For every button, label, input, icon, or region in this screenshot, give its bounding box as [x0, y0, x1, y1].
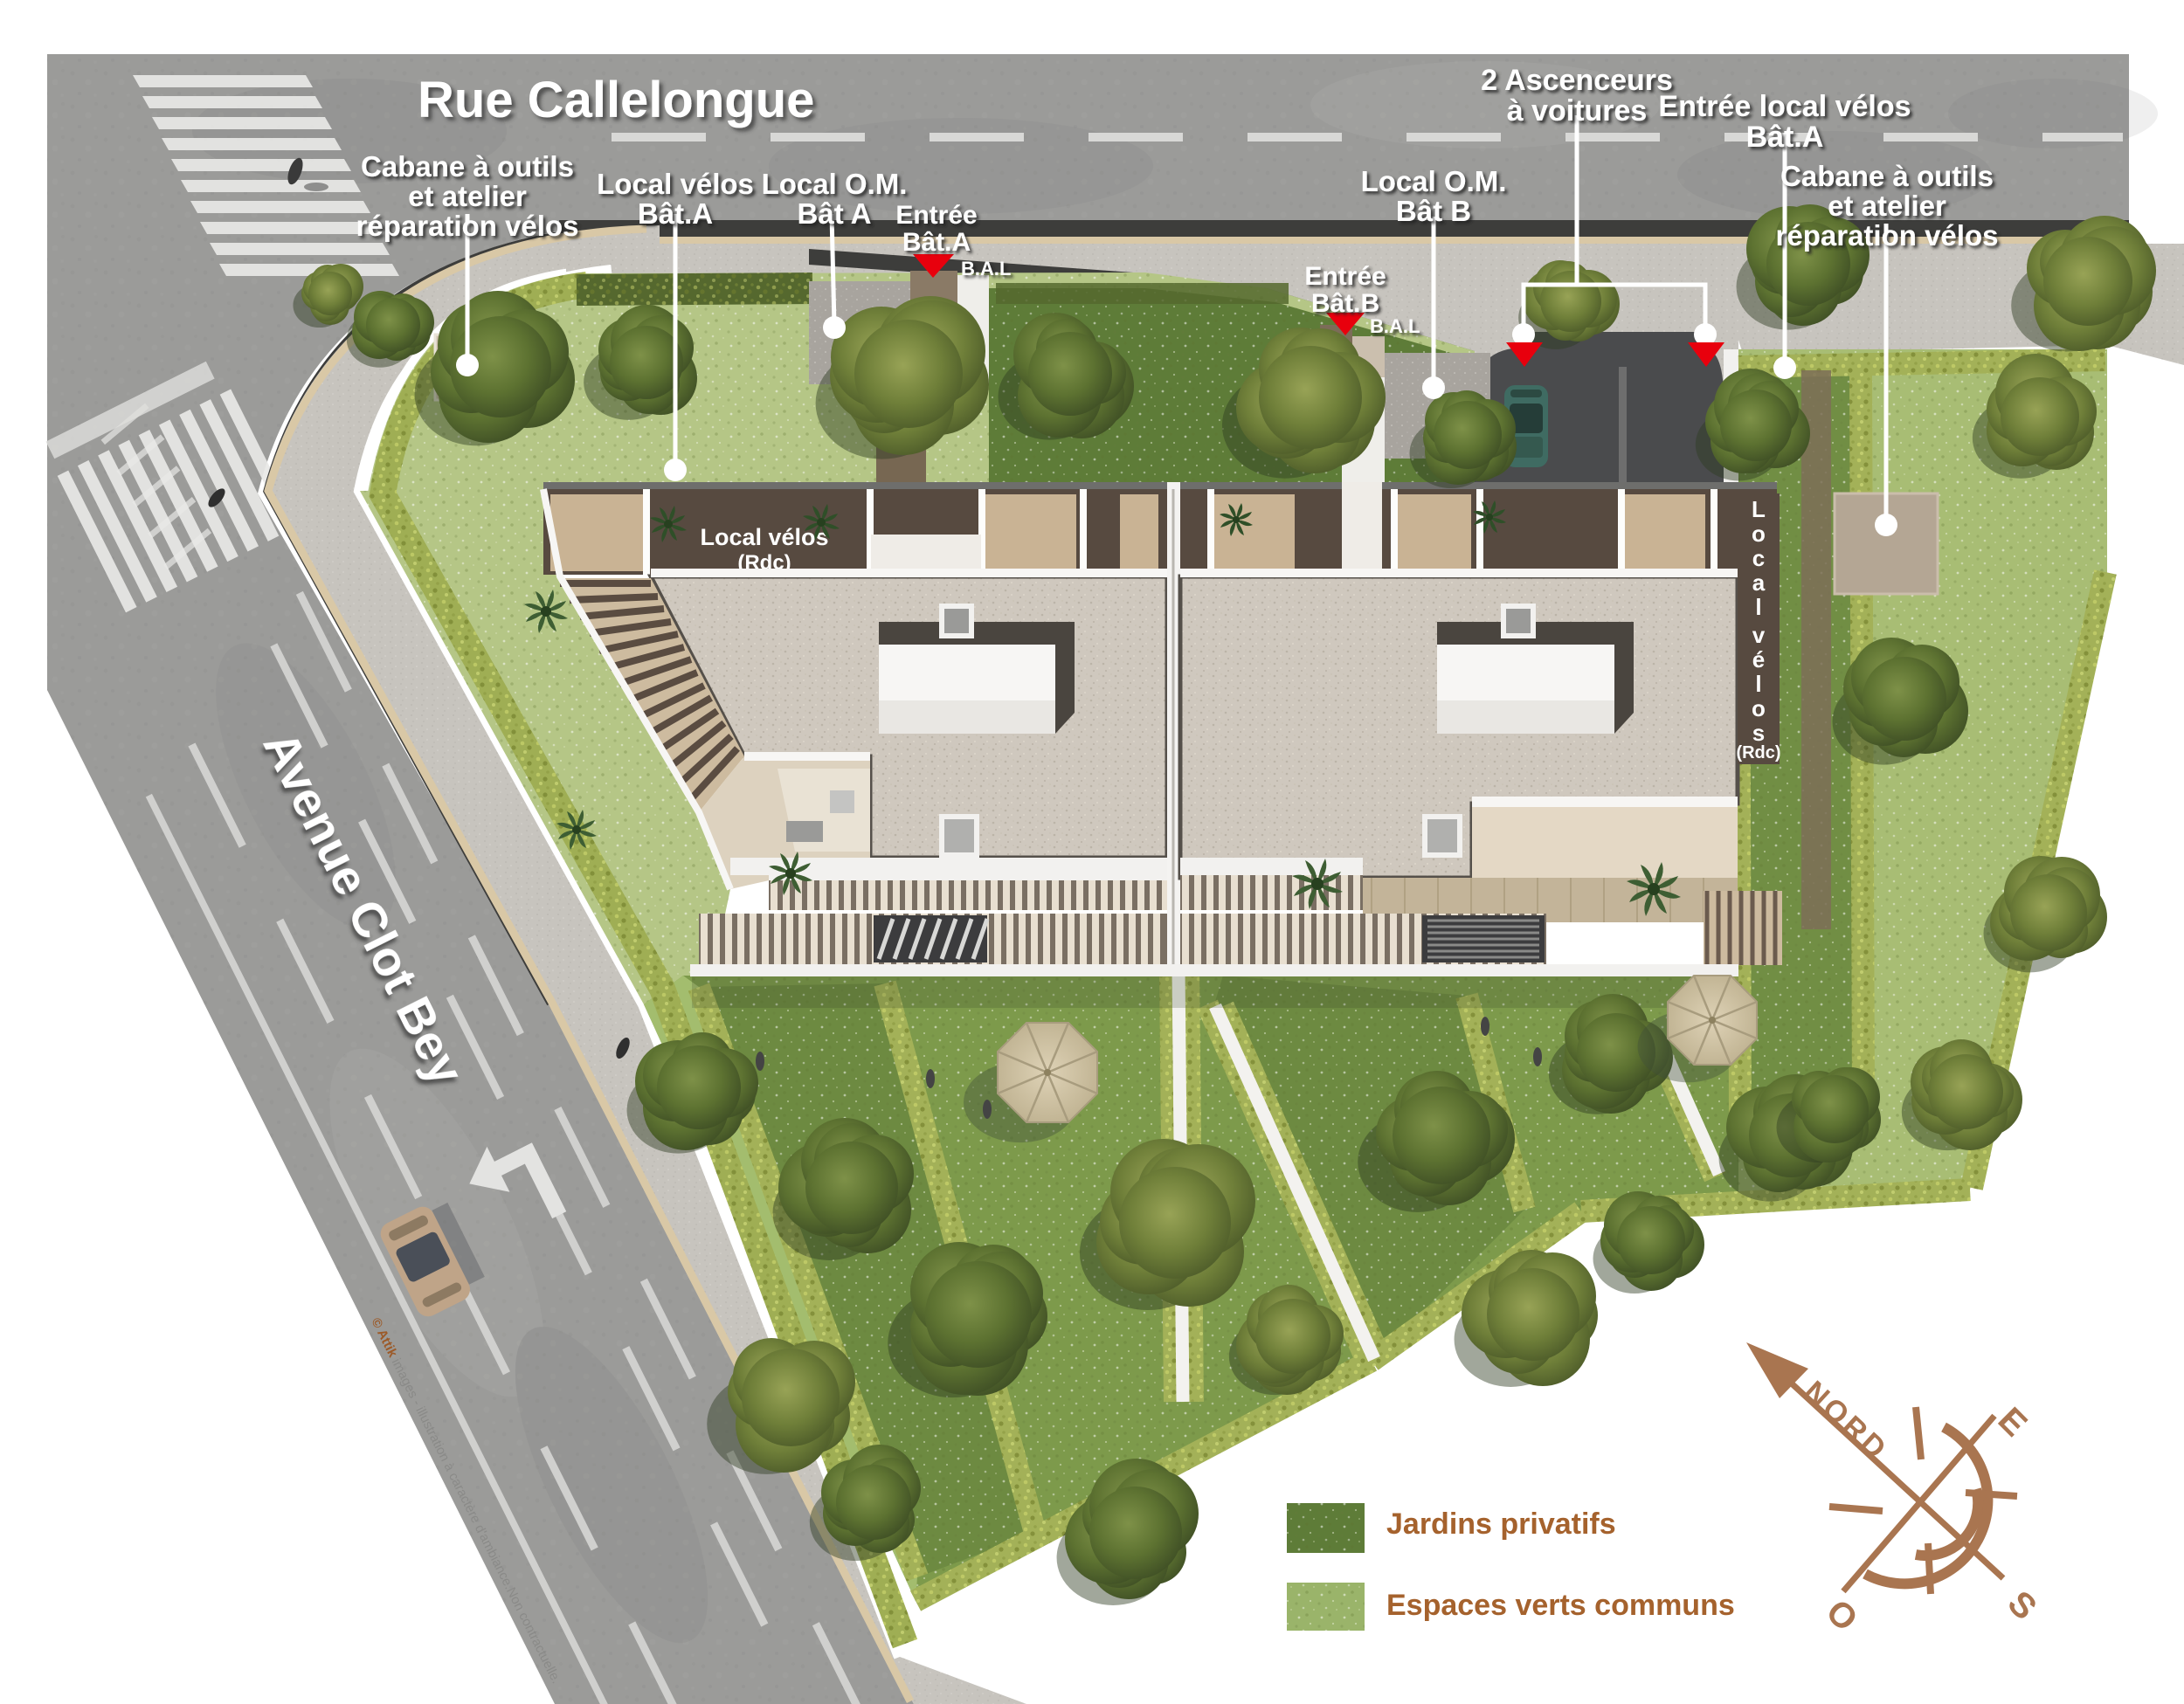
svg-text:Local vélos: Local vélos	[597, 168, 754, 200]
svg-text:c: c	[1752, 545, 1765, 571]
svg-text:Jardins privatifs: Jardins privatifs	[1386, 1507, 1616, 1541]
svg-text:l: l	[1755, 671, 1761, 697]
svg-text:é: é	[1752, 646, 1765, 673]
svg-text:réparation vélos: réparation vélos	[1776, 219, 1999, 252]
svg-text:Bât.A: Bât.A	[1746, 121, 1824, 154]
svg-text:Rue Callelongue: Rue Callelongue	[418, 72, 814, 128]
svg-text:Cabane à outils: Cabane à outils	[361, 150, 574, 183]
svg-text:Espaces verts communs: Espaces verts communs	[1386, 1589, 1735, 1622]
svg-text:B.A.L: B.A.L	[961, 258, 1011, 279]
svg-text:Bât.A: Bât.A	[902, 228, 971, 257]
svg-text:et atelier: et atelier	[408, 180, 527, 212]
svg-text:L: L	[1752, 496, 1766, 522]
svg-text:Local O.M.: Local O.M.	[762, 168, 908, 200]
svg-text:Bât A: Bât A	[798, 197, 872, 230]
svg-text:Entrée: Entrée	[895, 201, 977, 230]
svg-text:o: o	[1752, 695, 1766, 721]
svg-text:Bât.B: Bât.B	[1311, 289, 1379, 318]
svg-text:a: a	[1752, 569, 1766, 596]
svg-text:s: s	[1752, 720, 1765, 746]
svg-text:l: l	[1755, 594, 1761, 620]
svg-text:B.A.L: B.A.L	[1370, 315, 1420, 337]
svg-text:Bât.A: Bât.A	[638, 197, 713, 230]
svg-text:2 Ascenceurs: 2 Ascenceurs	[1481, 64, 1673, 97]
svg-text:(Rdc): (Rdc)	[1736, 743, 1780, 762]
svg-text:réparation vélos: réparation vélos	[356, 210, 579, 242]
svg-text:Entrée: Entrée	[1304, 262, 1386, 291]
svg-text:à voitures: à voitures	[1507, 94, 1648, 128]
svg-text:Entrée local vélos: Entrée local vélos	[1658, 90, 1911, 123]
svg-text:Bât B: Bât B	[1396, 195, 1471, 227]
svg-text:o: o	[1752, 521, 1766, 547]
svg-text:Cabane à outils: Cabane à outils	[1780, 160, 1994, 192]
svg-text:v: v	[1752, 622, 1766, 648]
svg-text:et atelier: et atelier	[1828, 190, 1946, 222]
svg-text:Local O.M.: Local O.M.	[1361, 165, 1507, 197]
